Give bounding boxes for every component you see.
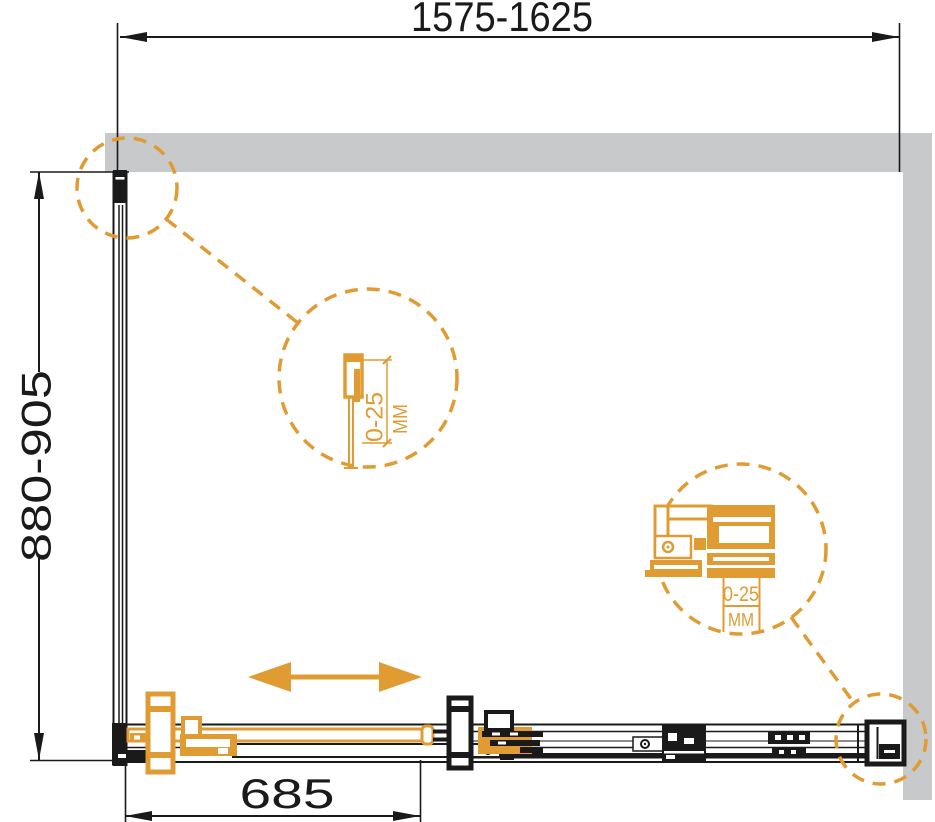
adjustment-label: 0-25 [723,583,759,606]
guide-block [768,732,810,757]
wall-top [105,133,932,172]
roller-carriage-center [478,712,543,760]
arrowhead-left [125,811,152,821]
sliding-door-panel [128,726,453,744]
wall-bracket-right [867,722,904,764]
profile-outline [114,172,127,765]
detail-wall-profile: 0-25 MM [344,355,412,468]
arrowhead-right [393,811,420,821]
top-dimension-label: 1575-1625 [411,0,593,40]
walls [105,133,932,800]
slide-direction-arrow [248,662,422,692]
callout-leader [791,617,854,703]
callout-leader [166,219,298,323]
detail-frame-profile: 0-25 MM [645,505,775,632]
unit-label: MM [728,610,754,630]
callout-circles [77,138,926,784]
arrowhead-right [872,32,899,42]
shower-enclosure-technical-drawing: 1575-1625 880-905 685 [0,0,935,822]
door-end-cap [422,726,433,744]
left-dimension-label: 880-905 [13,370,60,562]
wall-right [903,133,932,800]
profile-top-cap [113,170,127,203]
arrowhead-top [34,172,44,199]
unit-label: MM [390,404,412,434]
bottom-dimension-label: 685 [240,770,335,817]
arrowhead-left [120,32,147,42]
arrowhead-bottom [34,733,44,760]
left-wall-profile [112,170,127,765]
adjustment-label: 0-25 [361,392,388,442]
roller-bracket-black [449,698,471,768]
